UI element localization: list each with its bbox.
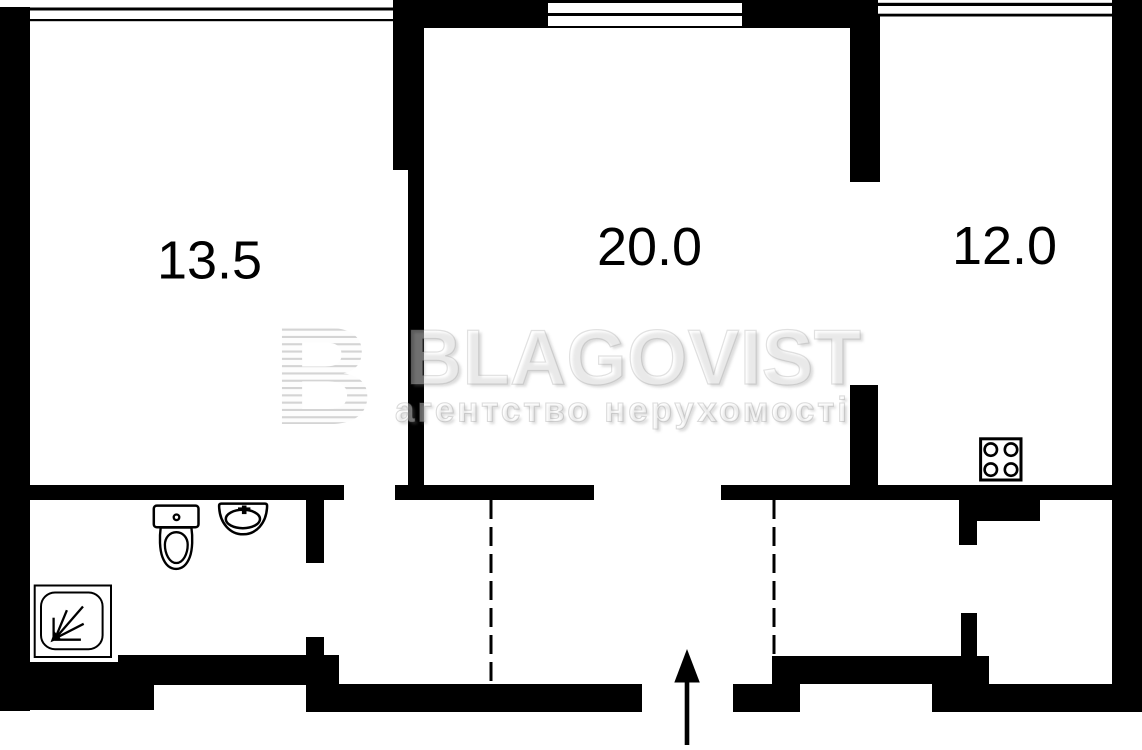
svg-text:13.5: 13.5 <box>157 231 262 291</box>
svg-text:BLAGOVIST: BLAGOVIST <box>406 315 861 401</box>
svg-text:20.0: 20.0 <box>597 217 702 277</box>
svg-text:12.0: 12.0 <box>952 216 1057 276</box>
svg-text:агентство нерухомості: агентство нерухомості <box>395 391 847 430</box>
